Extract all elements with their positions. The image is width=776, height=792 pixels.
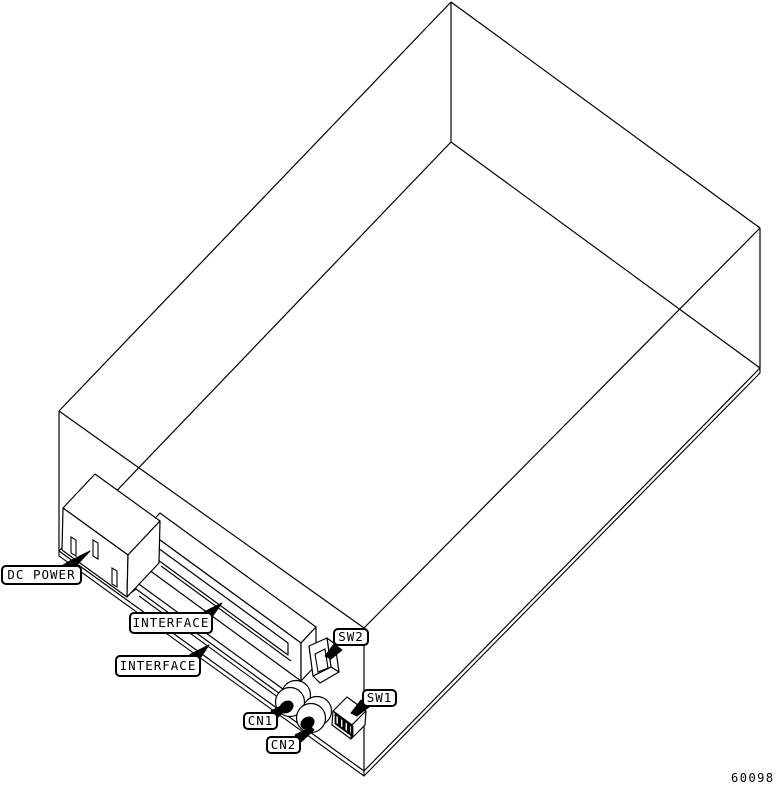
callout-sw2: SW2 [333,628,369,646]
figure-number: 60098 [731,771,775,785]
callout-cn1: CN1 [243,712,278,730]
callout-interface-2: INTERFACE [115,655,201,677]
callout-sw1: SW1 [362,689,397,707]
top-rear-right-edge [451,2,760,228]
callout-dc-power: DC POWER [1,565,82,585]
callout-interface-1: INTERFACE [129,612,213,634]
isometric-enclosure-diagram: DC POWER INTERFACE INTERFACE SW2 SW1 CN1… [0,0,776,792]
callout-cn2: CN2 [266,736,301,754]
bottom-rear-left-edge [59,142,451,551]
top-rear-left-edge [59,2,451,411]
bottom-rear-right-edge [451,142,760,368]
